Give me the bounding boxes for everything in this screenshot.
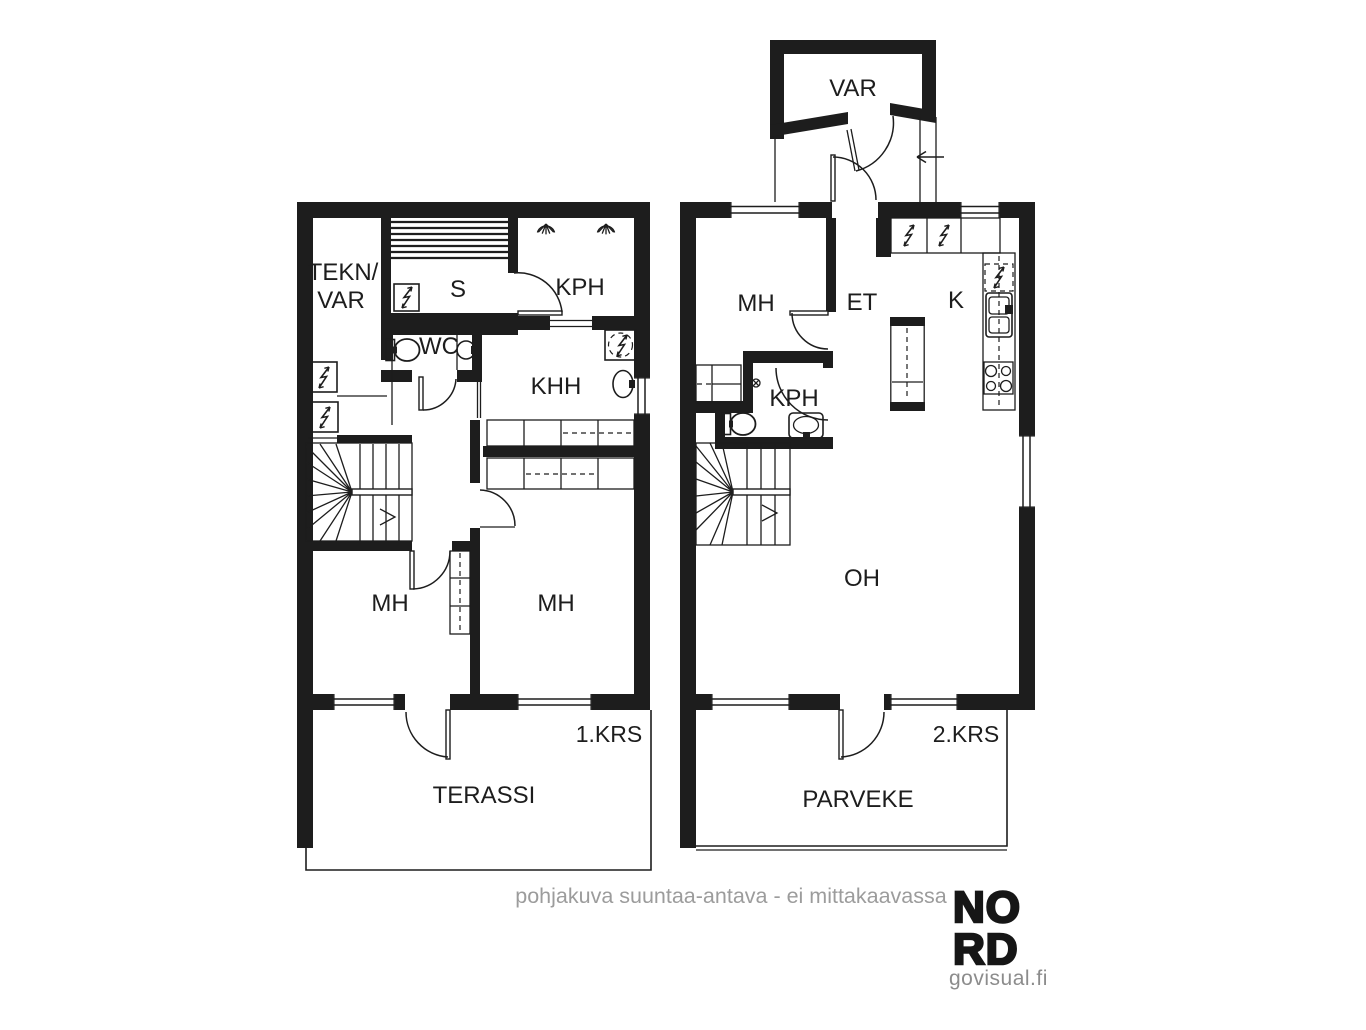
- stairs-direction-arrow: [380, 509, 395, 525]
- shower-icon: [598, 224, 615, 234]
- floor1-plan: TEKN/ VAR S KPH WC KHH MH MH TERASSI 1.K…: [297, 202, 651, 870]
- terrace-door: [406, 710, 450, 759]
- floor2-staircase: [696, 443, 790, 545]
- electrical-cabinet-icon: [311, 362, 337, 392]
- khh-cabinets: [487, 420, 634, 446]
- bedroom-right-door: [480, 490, 515, 527]
- appliance-icon: [939, 225, 949, 246]
- electrical-cabinet-icon: [311, 402, 338, 432]
- wardrobe: [450, 551, 470, 634]
- window: [634, 377, 650, 415]
- floorplan-document: TEKN/ VAR S KPH WC KHH MH MH TERASSI 1.K…: [0, 0, 1366, 1030]
- entrance-door: [831, 155, 876, 201]
- room-label-khh: KHH: [531, 373, 582, 400]
- floor2-storage-structure: [770, 40, 944, 202]
- room-label-tekn-var: TEKN/: [308, 259, 379, 286]
- floor2-plan: VAR MH ET K KPH OH PARVEKE 2.KRS: [680, 40, 1035, 850]
- window: [730, 202, 800, 218]
- window: [333, 694, 395, 710]
- room-label-mh-left: MH: [371, 590, 408, 617]
- floor-drain-icon: [752, 379, 760, 387]
- sauna-stove-icon: [394, 284, 419, 311]
- room-label-var: VAR: [829, 75, 877, 102]
- window: [517, 694, 592, 710]
- sink-icon: [613, 371, 635, 398]
- window: [890, 694, 958, 710]
- room-label-mh-right: MH: [537, 590, 574, 617]
- sink-icon: [789, 413, 823, 438]
- logo-domain: govisual.fi: [949, 967, 1048, 990]
- bedroom-door: [790, 311, 828, 349]
- shower-icon: [538, 224, 555, 234]
- kitchen-island: [891, 326, 924, 402]
- balcony-door: [839, 710, 884, 759]
- entrance-arrow-icon: [917, 152, 944, 163]
- room-label-parveke: PARVEKE: [802, 786, 913, 813]
- appliance-icon: [904, 225, 914, 246]
- room-label-oh: OH: [844, 565, 880, 592]
- room-label-tekn-var2: VAR: [317, 287, 365, 314]
- room-label-terassi: TERASSI: [433, 782, 536, 809]
- wc-door: [419, 377, 456, 410]
- floor2-level-label: 2.KRS: [933, 721, 999, 747]
- window: [960, 202, 1000, 218]
- washing-machine-icon: [605, 330, 636, 360]
- window: [1019, 435, 1035, 508]
- sauna-benches: [391, 222, 508, 258]
- toilet-icon: [722, 413, 756, 435]
- window: [711, 694, 790, 710]
- wardrobe: [696, 365, 741, 403]
- kitchen-counter: [891, 218, 1000, 253]
- room-label-k: K: [948, 287, 964, 314]
- floor1-level-label: 1.KRS: [576, 721, 642, 747]
- floor2-windows: [711, 202, 1035, 710]
- room-label-wc: WC: [419, 333, 459, 360]
- room-label-kph2: KPH: [769, 385, 818, 412]
- disclaimer-text: pohjakuva suuntaa-antava - ei mittakaava…: [515, 884, 946, 908]
- kitchen-counter: [983, 253, 1015, 410]
- floor1-staircase: [306, 443, 412, 541]
- room-label-mh: MH: [737, 290, 774, 317]
- room-label-et: ET: [847, 289, 878, 316]
- bedroom-left-door: [410, 551, 450, 589]
- room-label-sauna: S: [450, 276, 466, 303]
- room-label-kph: KPH: [555, 274, 604, 301]
- wardrobe: [487, 458, 634, 489]
- nord-logo: NO RD govisual.fi: [949, 883, 1048, 990]
